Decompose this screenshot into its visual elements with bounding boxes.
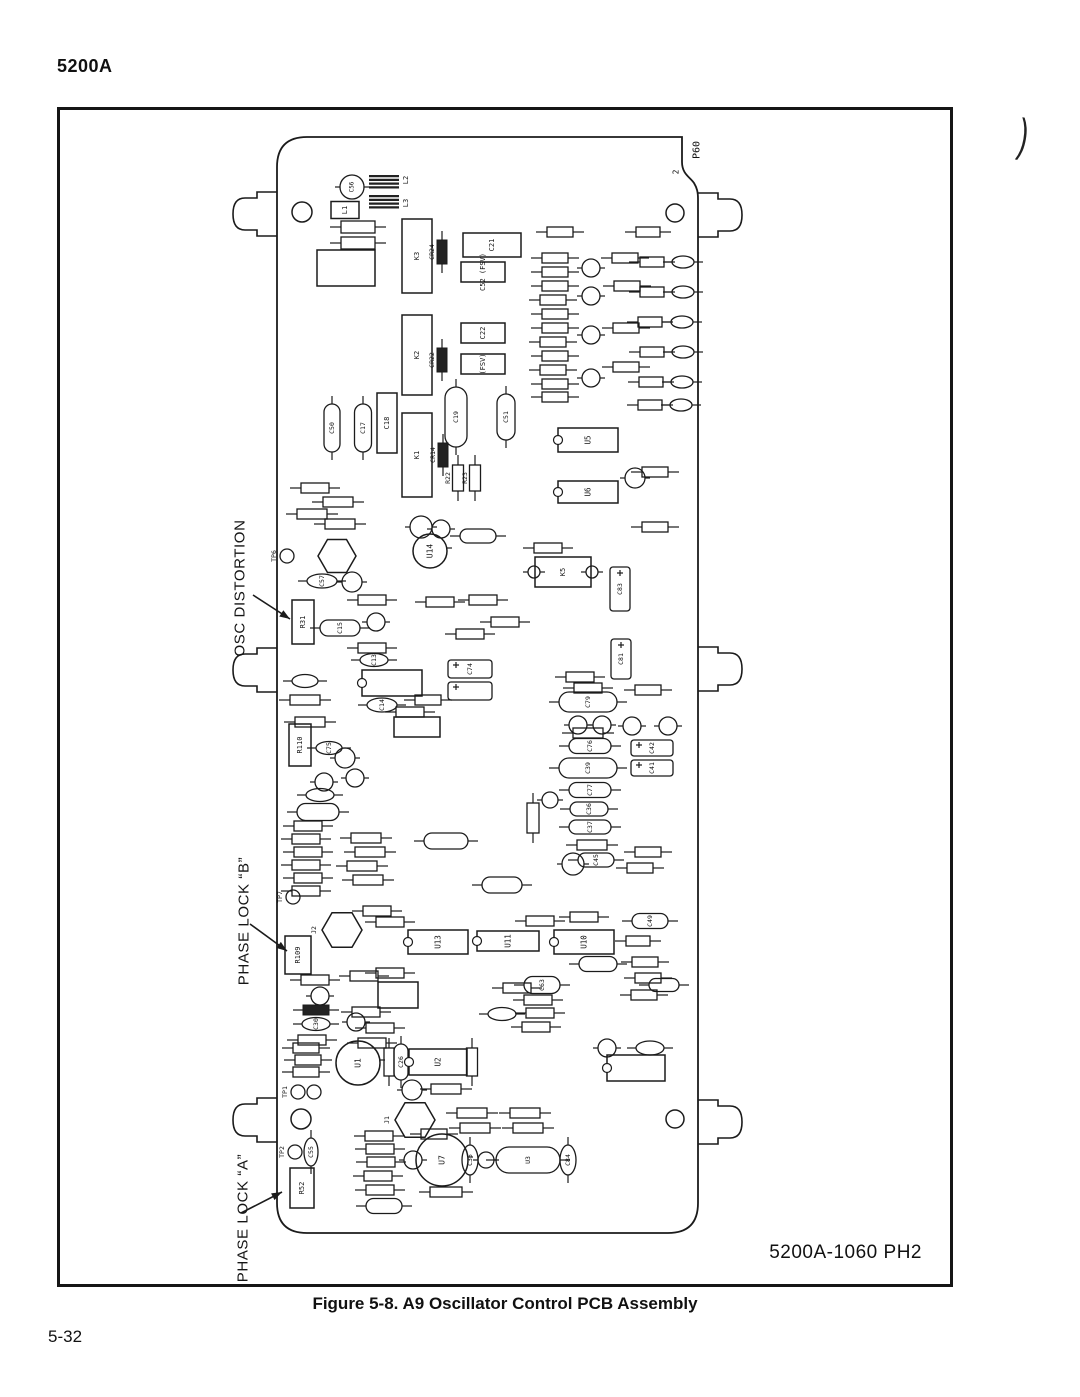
pcb-ic-U6: U6 xyxy=(554,481,619,503)
svg-text:C75: C75 xyxy=(325,742,333,754)
pcb-rs xyxy=(347,595,397,605)
svg-text:CR22: CR22 xyxy=(428,352,436,368)
callout-arrow xyxy=(253,595,290,619)
pcb-dv-CR24: CR24 xyxy=(428,231,447,273)
pcb-st-C17: C17 xyxy=(355,396,372,460)
pcb-st-C79: C79 xyxy=(549,692,627,712)
svg-text:L3: L3 xyxy=(402,199,410,207)
page-number: 5-32 xyxy=(48,1327,82,1347)
pcb-q xyxy=(399,1151,427,1169)
pcb-ov xyxy=(479,1008,525,1021)
svg-text:R22: R22 xyxy=(444,472,452,484)
pcb-q xyxy=(330,748,360,768)
pcb-rs xyxy=(602,323,650,333)
svg-text:C41: C41 xyxy=(648,762,656,774)
svg-text:C14: C14 xyxy=(378,699,386,711)
pcb-rs xyxy=(625,227,671,237)
pcb-rs xyxy=(566,840,618,850)
pcb-rs xyxy=(480,617,530,627)
svg-text:(FSV): (FSV) xyxy=(479,353,487,374)
pcb-rs xyxy=(531,309,579,319)
pcb-q xyxy=(306,987,334,1005)
svg-text:2: 2 xyxy=(672,169,681,174)
svg-text:C76: C76 xyxy=(586,740,594,752)
pcb-st xyxy=(356,1199,412,1214)
svg-text:C18: C18 xyxy=(383,417,391,430)
svg-text:C83: C83 xyxy=(616,583,624,595)
svg-text:R110: R110 xyxy=(296,737,304,754)
svg-text:C15: C15 xyxy=(336,622,344,634)
svg-text:C42: C42 xyxy=(648,742,656,754)
pcb-ov xyxy=(627,1041,673,1055)
callout-phase-lock-a: PHASE LOCK “A” xyxy=(235,1154,252,1282)
pcb-rs xyxy=(624,973,672,983)
svg-text:C30: C30 xyxy=(312,1018,320,1030)
pcb-rl-R109: R109 xyxy=(285,936,311,974)
pcb-rs xyxy=(449,1123,501,1133)
pcb-rl-L1: L1 xyxy=(331,202,359,219)
pcb-rs xyxy=(415,597,465,607)
pcb-rs xyxy=(290,975,340,985)
callout-osc-distortion: OSC DISTORTION xyxy=(232,519,249,656)
pcb-el-C81: C81 xyxy=(611,639,631,679)
pcb-q xyxy=(577,287,605,305)
svg-text:K3: K3 xyxy=(413,252,421,260)
pcb-rs xyxy=(531,392,579,402)
svg-text:K1: K1 xyxy=(413,451,421,459)
pcb-ho xyxy=(292,202,312,222)
pcb-ov xyxy=(662,316,702,328)
pcb-hx-J1: J1 xyxy=(383,1103,435,1138)
pcb-ov xyxy=(663,256,703,268)
pcb-rv-R23: R23 xyxy=(461,455,481,501)
pcb-tp-TP1: TP1 xyxy=(281,1085,305,1099)
pcb-rl-R110: R110 xyxy=(289,724,311,766)
pcb-rs xyxy=(529,295,577,305)
pcb-rs xyxy=(419,1187,473,1197)
svg-text:C26: C26 xyxy=(397,1056,405,1068)
pcb-rs xyxy=(615,936,661,946)
pcb-st xyxy=(414,833,478,849)
pcb-rs xyxy=(555,672,605,682)
callout-arrow xyxy=(250,924,287,951)
pcb-el xyxy=(448,682,492,700)
pcb-rv xyxy=(467,1038,478,1086)
pcb-rs xyxy=(458,595,508,605)
svg-text:C50: C50 xyxy=(328,422,336,434)
pcb-rs xyxy=(281,860,331,870)
pcb-rs xyxy=(312,497,364,507)
pcb-q xyxy=(557,853,589,875)
svg-text:L2: L2 xyxy=(402,176,410,184)
pcb-rs xyxy=(283,873,333,883)
svg-text:U11: U11 xyxy=(504,934,513,948)
pcb-rl-C22: C22 xyxy=(461,323,505,343)
pcb-q xyxy=(618,717,646,735)
pcb-rs xyxy=(523,543,573,553)
pcb-rs xyxy=(347,643,397,653)
pcb-tx-L2: L2 xyxy=(402,176,410,184)
svg-text:U13: U13 xyxy=(434,935,443,949)
pcb-rs xyxy=(281,834,331,844)
pcb-st-C37: C37 xyxy=(559,820,621,834)
svg-text:TP2: TP2 xyxy=(278,1146,286,1158)
svg-text:U1: U1 xyxy=(354,1058,363,1068)
svg-text:K5: K5 xyxy=(559,568,567,576)
pcb-rs xyxy=(286,509,338,519)
pcb-st-C19: C19 xyxy=(445,379,467,455)
svg-text:J2: J2 xyxy=(310,926,318,934)
pcb-q xyxy=(577,369,605,387)
pcb-rs xyxy=(385,707,435,717)
pcb-rs xyxy=(283,847,333,857)
pcb-ic-U13: U13 xyxy=(404,930,469,954)
pcb-rs xyxy=(446,1108,498,1118)
svg-text:C77: C77 xyxy=(586,784,594,796)
svg-text:TP6: TP6 xyxy=(270,550,278,562)
svg-text:C57: C57 xyxy=(318,575,326,587)
svg-text:TP1: TP1 xyxy=(281,1086,289,1098)
pcb-st-C45: C45 xyxy=(568,853,624,867)
pcb-ov-C57: C57 xyxy=(298,574,346,588)
pcb-rs xyxy=(365,917,415,927)
pcb-q xyxy=(523,566,545,578)
svg-text:R23: R23 xyxy=(461,472,469,484)
pcb-st-C15: C15 xyxy=(310,620,370,636)
pcb-st-C49: C49 xyxy=(622,914,678,929)
pcb-ov-C13: C13 xyxy=(351,654,397,667)
svg-text:C84: C84 xyxy=(564,1154,572,1166)
svg-text:CR14: CR14 xyxy=(429,447,437,463)
pcb-st-C36: C36 xyxy=(560,802,618,816)
pcb-rl xyxy=(317,250,375,286)
pcb-rs xyxy=(353,1171,403,1181)
svg-text:C79: C79 xyxy=(584,696,592,708)
svg-text:U10: U10 xyxy=(580,935,589,949)
pcb-rs xyxy=(531,267,579,277)
pcb-rs xyxy=(531,323,579,333)
pcb-rs xyxy=(529,365,577,375)
pcb-q xyxy=(337,572,367,592)
pcb-q xyxy=(341,769,369,787)
pcb-rs xyxy=(282,1067,330,1077)
pcb-tx-P60: P60 xyxy=(692,141,703,159)
pcb-rs xyxy=(314,519,366,529)
pcb-el-C41: C41 xyxy=(631,760,673,776)
pcb-rl-C52FSV: C52 (FSV) xyxy=(461,253,505,291)
pcb-tp-TP7: TP7 xyxy=(276,890,300,904)
svg-text:U2: U2 xyxy=(434,1057,443,1066)
svg-text:C49: C49 xyxy=(646,915,654,927)
pcb-rs xyxy=(616,863,664,873)
pcb-rs xyxy=(330,221,386,233)
pcb-rs xyxy=(624,847,672,857)
pcb-rs xyxy=(420,1084,472,1094)
svg-text:C13: C13 xyxy=(370,654,378,666)
svg-text:C63: C63 xyxy=(538,979,546,991)
pcb-el-C83: C83 xyxy=(610,567,630,611)
pcb-rs xyxy=(339,971,389,981)
pcb-rs xyxy=(624,685,672,695)
pcb-rs xyxy=(601,253,649,263)
pcb-st-C76: C76 xyxy=(559,739,621,754)
mounting-ear xyxy=(698,647,742,691)
pcb-rs xyxy=(499,1108,551,1118)
pcb-rs xyxy=(365,968,415,978)
pcb-rs xyxy=(355,1185,405,1195)
pcb-q xyxy=(577,326,605,344)
pcb-ho xyxy=(666,204,684,222)
drawing-number: 5200A-1060 PH2 xyxy=(769,1242,922,1264)
pcb-q xyxy=(620,468,650,488)
pcb-ic xyxy=(603,1055,666,1081)
pcb-rl-FSV: (FSV) xyxy=(461,353,505,374)
svg-text:C74: C74 xyxy=(466,663,474,675)
pcb-el-C42: C42 xyxy=(631,740,673,756)
pcb-st-C63: C63 xyxy=(514,977,570,994)
svg-text:C36: C36 xyxy=(585,803,593,815)
svg-text:C52 (FSV): C52 (FSV) xyxy=(479,253,487,291)
pcb-q xyxy=(564,716,592,734)
pcb-q xyxy=(654,717,682,735)
pcb-q xyxy=(537,792,563,808)
callout-phase-lock-b: PHASE LOCK “B” xyxy=(236,857,253,985)
pcb-st-C51: C51 xyxy=(497,386,515,448)
pcb-rs xyxy=(336,861,388,871)
pcb-rs xyxy=(344,847,396,857)
pcb-rs xyxy=(355,1144,405,1154)
pcb-rs xyxy=(559,912,609,922)
pcb-el-C74: C74 xyxy=(448,660,492,678)
pcb-rs xyxy=(279,695,331,705)
pcb-bc-U14: U14 xyxy=(413,534,452,568)
mounting-ear xyxy=(233,192,277,236)
pcb-ho xyxy=(666,1110,684,1128)
pcb-ov xyxy=(661,399,701,411)
pcb-rs xyxy=(502,1123,554,1133)
svg-text:C56: C56 xyxy=(349,181,356,192)
pcb-rl-K1: K1 xyxy=(402,413,432,497)
pcb-st xyxy=(569,957,627,972)
pcb-rs xyxy=(536,227,584,237)
svg-text:C39: C39 xyxy=(584,762,592,774)
pcb-hx xyxy=(318,540,356,573)
svg-text:C22: C22 xyxy=(479,327,487,340)
pcb-rl-R31: R31 xyxy=(292,600,314,644)
pcb-rs xyxy=(342,875,394,885)
pcb-st xyxy=(287,804,349,821)
mounting-ear xyxy=(233,1098,277,1142)
svg-text:C55: C55 xyxy=(307,1146,315,1158)
mounting-ear xyxy=(698,1100,742,1144)
pcb-tp-TP2: TP2 xyxy=(278,1145,302,1159)
pcb-ov-C30: C30 xyxy=(293,1018,339,1031)
pcb-rs xyxy=(531,351,579,361)
pcb-ov xyxy=(662,376,702,388)
pcb-rs xyxy=(283,821,333,831)
pcb-rs xyxy=(284,1055,332,1065)
svg-text:U6: U6 xyxy=(584,487,593,497)
svg-text:C81: C81 xyxy=(617,653,625,665)
pcb-dv-CR22: CR22 xyxy=(428,339,447,381)
pcb-ic xyxy=(358,670,423,696)
pcb-tp-TP6: TP6 xyxy=(270,549,294,563)
pcb-q xyxy=(588,716,616,734)
pcb-rl xyxy=(394,717,440,737)
pcb-ov-C14: C14 xyxy=(358,698,406,712)
pcb-rs xyxy=(511,1022,561,1032)
svg-text:R31: R31 xyxy=(299,616,307,629)
pcb-ov xyxy=(663,346,703,358)
pcb-rs xyxy=(529,337,577,347)
pcb-rs xyxy=(621,957,669,967)
pcb-assembly-drawing: C56L2L3L1K3CR24C21C52 (FSV)K2CR22C22(FSV… xyxy=(0,0,1080,1397)
pcb-q xyxy=(581,566,603,578)
pcb-st-C39: C39 xyxy=(549,758,627,778)
svg-text:L1: L1 xyxy=(341,206,349,214)
pcb-st-C50: C50 xyxy=(324,396,340,460)
pcb-ho xyxy=(291,1109,311,1129)
svg-text:C21: C21 xyxy=(488,239,496,252)
pcb-ic-U10: U10 xyxy=(550,930,615,954)
svg-text:P60: P60 xyxy=(692,141,703,159)
pcb-rs xyxy=(352,906,402,916)
pcb-rs xyxy=(515,916,565,926)
pcb-rs xyxy=(531,281,579,291)
pcb-rs xyxy=(340,833,392,843)
pcb-st xyxy=(450,529,506,543)
pcb-rs xyxy=(531,379,579,389)
svg-text:R52: R52 xyxy=(298,1182,306,1195)
pcb-tp xyxy=(307,1085,321,1099)
pcb-rs xyxy=(531,253,579,263)
manual-page: 5200A C56L2L3L1K3CR24C21C52 (FSV)K2CR22C… xyxy=(0,0,1080,1397)
svg-text:C37: C37 xyxy=(586,821,594,833)
svg-text:C35: C35 xyxy=(466,1154,474,1166)
pcb-di xyxy=(293,1005,339,1015)
pcb-co xyxy=(369,195,399,209)
svg-text:TP7: TP7 xyxy=(276,891,284,903)
svg-text:J1: J1 xyxy=(383,1116,391,1124)
svg-text:U5: U5 xyxy=(584,435,593,444)
svg-text:K2: K2 xyxy=(413,351,421,359)
pcb-rs xyxy=(602,362,650,372)
pcb-tx-2: 2 xyxy=(672,169,681,174)
pcb-ic-U5: U5 xyxy=(554,428,619,452)
pcb-tx-L3: L3 xyxy=(402,199,410,207)
svg-text:U3: U3 xyxy=(524,1156,532,1164)
pcb-ov xyxy=(283,675,327,688)
pcb-q-C56: C56 xyxy=(335,175,369,199)
pcb-rs xyxy=(330,237,386,249)
pcb-rs xyxy=(631,522,679,532)
figure-caption: Figure 5-8. A9 Oscillator Control PCB As… xyxy=(57,1294,953,1314)
pcb-rs xyxy=(603,281,651,291)
pcb-rs xyxy=(515,1008,565,1018)
pcb-hx-J2: J2 xyxy=(310,913,362,948)
pcb-ic-U2: U2 xyxy=(405,1049,468,1075)
pcb-co xyxy=(369,175,399,189)
pcb-rs xyxy=(513,995,563,1005)
svg-text:U14: U14 xyxy=(426,544,435,559)
pcb-rs xyxy=(356,1157,406,1167)
svg-text:CR24: CR24 xyxy=(428,244,436,260)
pcb-rl-C21: C21 xyxy=(463,233,521,257)
mounting-ear xyxy=(698,193,742,237)
pcb-st xyxy=(472,877,532,893)
svg-text:C17: C17 xyxy=(359,422,367,434)
pcb-q xyxy=(577,259,605,277)
pcb-ov xyxy=(663,286,703,298)
svg-text:U7: U7 xyxy=(438,1155,447,1165)
pcb-rl-C18: C18 xyxy=(377,393,397,453)
svg-text:C45: C45 xyxy=(592,854,600,866)
svg-text:C19: C19 xyxy=(452,411,460,423)
svg-text:C51: C51 xyxy=(502,411,510,423)
svg-text:R109: R109 xyxy=(294,947,302,964)
pcb-ic-U11: U11 xyxy=(473,931,540,951)
pcb-rs xyxy=(284,717,336,727)
pcb-st-C77: C77 xyxy=(559,783,621,798)
pcb-rs xyxy=(290,483,340,493)
pcb-rs xyxy=(445,629,495,639)
pcb-rs xyxy=(354,1131,404,1141)
pcb-rl xyxy=(378,982,418,1008)
